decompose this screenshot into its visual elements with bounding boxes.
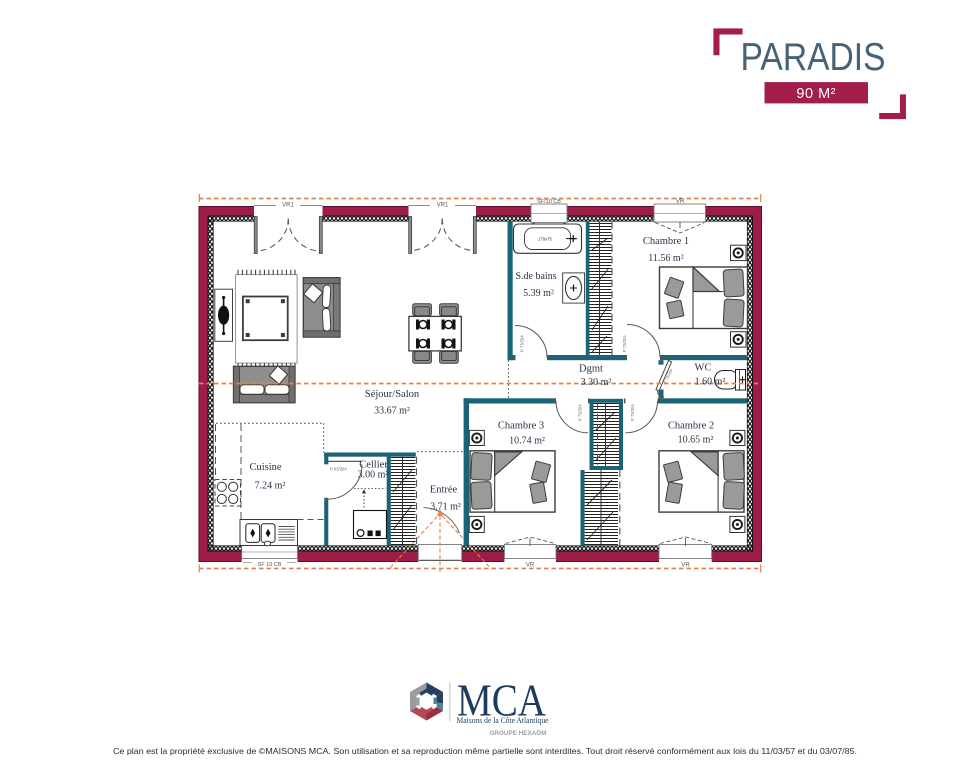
svg-text:VR1: VR1: [437, 203, 449, 209]
svg-text:Chambre 1: Chambre 1: [643, 236, 689, 247]
svg-text:VR: VR: [676, 199, 685, 205]
svg-text:1.60 m²: 1.60 m²: [695, 377, 726, 388]
svg-text:3.00 m²: 3.00 m²: [358, 470, 389, 481]
svg-text:Cuisine: Cuisine: [249, 462, 281, 473]
svg-text:10.65 m²: 10.65 m²: [678, 435, 714, 446]
svg-text:Chambre 3: Chambre 3: [498, 421, 544, 432]
svg-text:11.56 m²: 11.56 m²: [648, 253, 683, 264]
svg-text:P 73/204: P 73/204: [630, 404, 635, 421]
svg-text:Entrée: Entrée: [430, 485, 458, 496]
svg-text:Dgmt: Dgmt: [579, 364, 603, 375]
svg-text:Maisons de la Côte Atlantique: Maisons de la Côte Atlantique: [457, 715, 549, 725]
svg-text:SF 10 CB: SF 10 CB: [258, 562, 282, 568]
svg-text:10.74 m²: 10.74 m²: [509, 436, 545, 447]
svg-text:P 73/204: P 73/204: [520, 335, 525, 352]
svg-text:PARADIS: PARADIS: [741, 36, 886, 79]
svg-text:SF/10 CB: SF/10 CB: [537, 199, 561, 205]
svg-text:33.67 m²: 33.67 m²: [374, 406, 410, 417]
svg-text:Chambre 2: Chambre 2: [668, 421, 714, 432]
svg-text:90 M²: 90 M²: [796, 86, 836, 102]
svg-text:P 63/204: P 63/204: [330, 467, 347, 472]
svg-text:P 73/204: P 73/204: [622, 335, 627, 352]
svg-text:VR1: VR1: [282, 203, 294, 209]
svg-text:WC: WC: [695, 363, 712, 374]
svg-text:P 73/204: P 73/204: [578, 404, 583, 421]
svg-text:170x75: 170x75: [538, 236, 552, 241]
svg-text:7.24 m²: 7.24 m²: [255, 481, 286, 492]
svg-text:Ce plan est la propriété exclu: Ce plan est la propriété exclusive de ©M…: [113, 746, 857, 756]
svg-text:GROUPE HEXAÖM: GROUPE HEXAÖM: [490, 728, 547, 737]
svg-text:3.30 m²: 3.30 m²: [581, 377, 612, 388]
svg-text:S.de bains: S.de bains: [515, 271, 556, 282]
svg-text:Séjour/Salon: Séjour/Salon: [365, 389, 420, 400]
svg-text:VR: VR: [526, 563, 535, 569]
svg-text:VR: VR: [681, 563, 690, 569]
svg-text:5.39 m²: 5.39 m²: [523, 288, 554, 299]
svg-text:3.71 m²: 3.71 m²: [430, 502, 461, 513]
